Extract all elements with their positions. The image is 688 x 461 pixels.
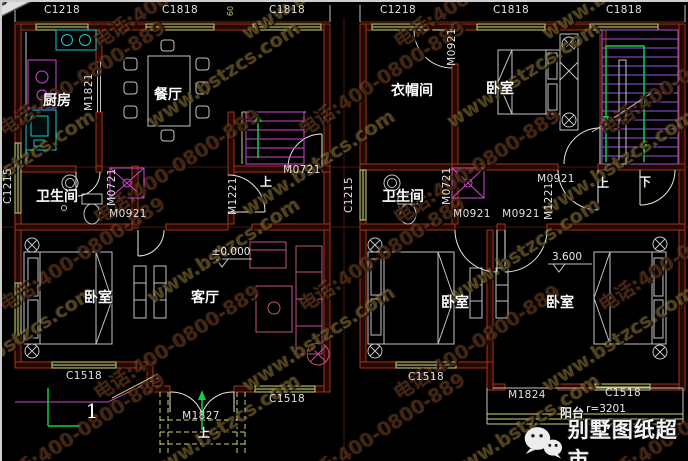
floor1-living-furniture [154,242,329,365]
north-arrow-icon [0,0,34,17]
floor1-entrance [15,374,245,456]
floor1-walls [15,24,330,392]
floor2-plan [360,24,685,424]
floor2-bedroom-right-furniture [594,237,667,359]
brand-logo: 别墅图纸超市 [522,414,688,461]
cad-drawing [0,0,688,461]
floor2-walls [360,24,685,390]
floor-plan-canvas: www.bstzcs.com电话:400-0800-889www.bstzcs.… [0,0,688,461]
floor1-dining-furniture [124,40,209,141]
floor2-level-symbol [548,264,592,272]
floor1-plan [15,24,330,456]
floor1-level-symbol [210,259,252,267]
floor1-windows [15,24,321,392]
floor1-stairs [242,112,306,164]
image-border-left [0,0,2,461]
image-border-top [0,0,688,2]
floor2-bath-fixtures [384,168,484,224]
brand-name: 别墅图纸超市 [568,414,688,461]
floor2-bedroom-top-furniture [498,34,578,130]
wechat-icon [522,423,564,461]
floor1-kitchen-fixtures [26,30,96,162]
axis-marker [48,388,80,426]
floor1-bedroom-furniture [24,238,146,358]
floor2-windows [360,24,658,390]
